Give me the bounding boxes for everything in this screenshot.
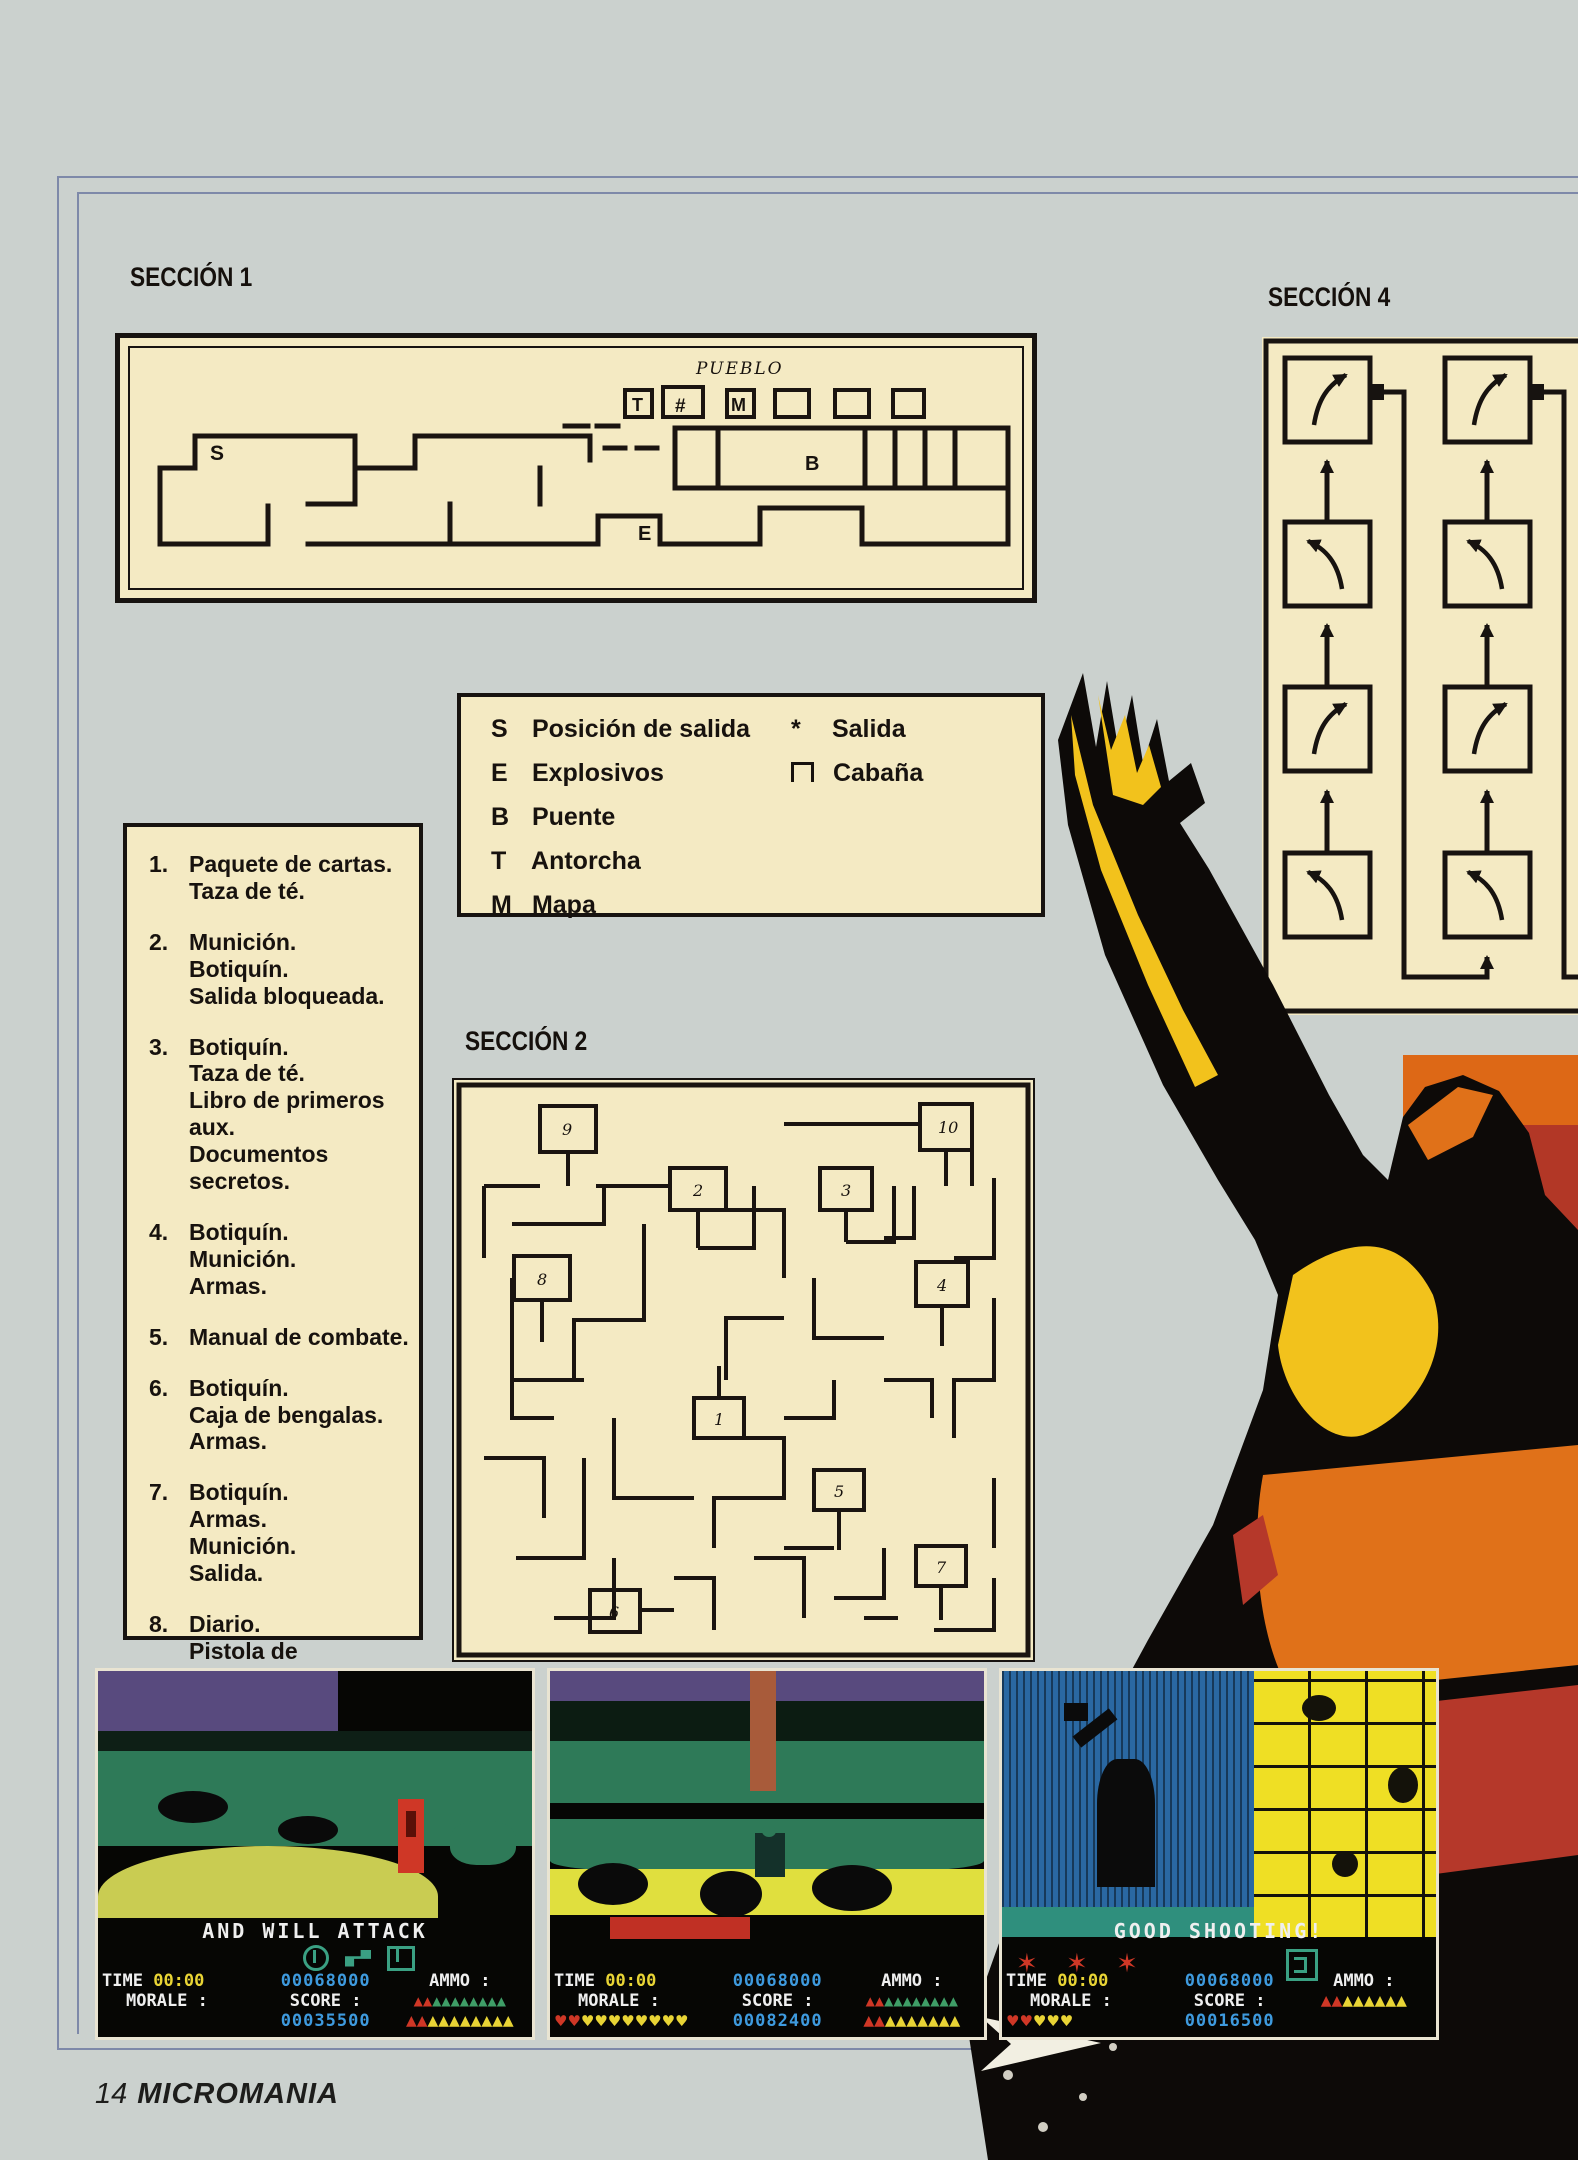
- hud: TIME 00:00 MORALE : ♥♥♥♥♥ 00068000 SCORE…: [1006, 1971, 1432, 2031]
- red-water: [610, 1917, 750, 1939]
- score-bottom: 00016500: [1164, 2011, 1296, 2031]
- legend-key-e: E: [491, 759, 525, 788]
- legend-key-s: S: [491, 715, 525, 744]
- page-number: 14: [95, 2078, 127, 2110]
- legend-row-m: M Mapa: [491, 891, 596, 920]
- cabin-square-icon: [791, 762, 814, 782]
- shadow-blob: [278, 1816, 338, 1844]
- maze-room-3: 3: [841, 1181, 851, 1200]
- hearts-red: ♥♥: [554, 2012, 581, 2030]
- hearts-yellow: ♥♥♥: [1033, 2012, 1073, 2030]
- ammo-row1-red: ▲▲: [414, 1994, 432, 2008]
- time-label: TIME: [1006, 1971, 1047, 1991]
- list-item: 6.Botiquín. Caja de bengalas. Armas.: [149, 1375, 409, 1456]
- splotch: [1302, 1695, 1336, 1721]
- shadow-blob: [158, 1791, 228, 1823]
- enemy-sprite-detail: [406, 1811, 416, 1837]
- list-item: 3.Botiquín. Taza de té. Libro de primero…: [149, 1034, 409, 1195]
- legend-row-cabin: Cabaña: [791, 759, 923, 788]
- held-object: [1064, 1703, 1088, 1721]
- list-item: 2.Munición. Botiquín. Salida bloqueada.: [149, 929, 409, 1010]
- morale-label: MORALE :: [1006, 1991, 1164, 2011]
- list-item: 1.Paquete de cartas. Taza de té.: [149, 851, 409, 905]
- page-frame-inner-left: [77, 192, 79, 2034]
- legend-row-exit: * Salida: [791, 715, 906, 744]
- hearts-red: ♥♥: [1006, 2012, 1033, 2030]
- ammo-row2-red: ▲▲: [1321, 1993, 1343, 2009]
- maze-room-9: 9: [562, 1120, 572, 1139]
- gun-icon: [345, 1950, 371, 1967]
- score-top: 00068000: [1164, 1971, 1296, 1991]
- section1-title: SECCIÓN 1: [130, 262, 252, 293]
- morale-label: MORALE :: [554, 1991, 712, 2011]
- screenshot-temple-interior: GOOD SHOOTING! ✶ ✶ ✶ TIME 00:00 MORALE :…: [999, 1668, 1439, 2040]
- maze-room-2: 2: [692, 1181, 703, 1200]
- ground-bank: [98, 1846, 438, 1918]
- map-icon: [387, 1946, 415, 1971]
- time-label: TIME: [102, 1971, 143, 1991]
- maze-room-8: 8: [537, 1270, 547, 1289]
- score-bottom: 00035500: [260, 2011, 392, 2031]
- items-panel: 1.Paquete de cartas. Taza de té. 2.Munic…: [123, 823, 423, 1640]
- list-item: 5.Manual de combate.: [149, 1324, 409, 1351]
- legend-label-e: Explosivos: [532, 759, 664, 787]
- legend-row-b: B Puente: [491, 803, 615, 832]
- legend-label-exit: Salida: [832, 715, 906, 743]
- score-label: SCORE :: [260, 1991, 392, 2011]
- soldier-silhouette: [1097, 1759, 1155, 1887]
- screenshots-row: AND WILL ATTACK TIME 00:00 MORALE : 0006…: [95, 1668, 1439, 2040]
- ammo-label: AMMO :: [1296, 1971, 1432, 1991]
- ammo-row2-yellow: ▲▲▲▲▲▲▲▲: [428, 2013, 514, 2029]
- legend-key-asterisk: *: [791, 715, 825, 744]
- legend-label-b: Puente: [532, 803, 615, 831]
- compass-icon: [303, 1945, 329, 1971]
- game-message: GOOD SHOOTING!: [1002, 1919, 1436, 1943]
- legend-label-m: Mapa: [532, 891, 596, 919]
- page-frame-inner-top: [77, 192, 1578, 194]
- magazine-name: MICROMANIA: [137, 2078, 339, 2110]
- magazine-page: SECCIÓN 1 PUEBLO: [0, 0, 1578, 2160]
- hearts-yellow: ♥♥♥♥♥♥♥♥: [581, 2012, 689, 2030]
- soldier-head: [762, 1825, 776, 1837]
- score-label: SCORE :: [712, 1991, 844, 2011]
- legend-key-t: T: [491, 847, 525, 876]
- section1-map-panel: PUEBLO T # M S B E: [115, 333, 1037, 603]
- legend-label-s: Posición de salida: [532, 715, 750, 743]
- ammo-row1-green: ▲▲▲▲▲▲▲▲: [884, 1994, 958, 2008]
- legend-row-s: S Posición de salida: [491, 715, 750, 744]
- legend-row-e: E Explosivos: [491, 759, 664, 788]
- morale-label: MORALE :: [102, 1991, 260, 2011]
- tree-trunk: [750, 1671, 776, 1791]
- hud: TIME 00:00 MORALE : ♥♥♥♥♥♥♥♥♥♥ 00068000 …: [554, 1971, 980, 2031]
- splotch: [1332, 1851, 1358, 1877]
- score-top: 00068000: [260, 1971, 392, 1991]
- bush-blob: [700, 1871, 762, 1917]
- ammo-row1-red: ▲▲: [866, 1994, 884, 2008]
- bush-blob: [812, 1865, 892, 1911]
- screenshot-jungle-bridge: TIME 00:00 MORALE : ♥♥♥♥♥♥♥♥♥♥ 00068000 …: [547, 1668, 987, 2040]
- ammo-label: AMMO :: [844, 1971, 980, 1991]
- ammo-row2-red: ▲▲: [863, 2013, 885, 2029]
- score-top: 00068000: [712, 1971, 844, 1991]
- section4-title: SECCIÓN 4: [1268, 282, 1390, 313]
- ammo-row2-yellow: ▲▲▲▲▲▲▲: [885, 2013, 960, 2029]
- bush-blob: [578, 1863, 648, 1905]
- legend-row-t: T Antorcha: [491, 847, 641, 876]
- ammo-row2-yellow: ▲▲▲▲▲▲: [1342, 1993, 1407, 2009]
- soldier-sprite: [755, 1833, 785, 1877]
- time-value: 00:00: [1057, 1971, 1108, 1991]
- ammo-row1-green: ▲▲▲▲▲▲▲▲: [432, 1994, 506, 2008]
- score-label: SCORE :: [1164, 1991, 1296, 2011]
- page-footer: 14MICROMANIA: [95, 2078, 339, 2111]
- section2-title: SECCIÓN 2: [465, 1026, 587, 1057]
- screenshot-jungle-attack: AND WILL ATTACK TIME 00:00 MORALE : 0006…: [95, 1668, 535, 2040]
- time-label: TIME: [554, 1971, 595, 1991]
- legend-key-b: B: [491, 803, 525, 832]
- time-value: 00:00: [153, 1971, 204, 1991]
- inventory-icons: [303, 1945, 415, 1971]
- maze-room-5: 5: [834, 1482, 844, 1501]
- score-bottom: 00082400: [712, 2011, 844, 2031]
- game-message: AND WILL ATTACK: [98, 1919, 532, 1943]
- list-item: 7.Botiquín. Armas. Munición. Salida.: [149, 1479, 409, 1587]
- yellow-door-panels: [1254, 1671, 1436, 1937]
- ammo-row2-red: ▲▲: [406, 2013, 428, 2029]
- splotch: [1388, 1767, 1418, 1803]
- hud: TIME 00:00 MORALE : 00068000 SCORE : 000…: [102, 1971, 528, 2031]
- legend-label-t: Antorcha: [531, 847, 641, 875]
- section1-map-inner-border: [128, 346, 1024, 590]
- legend-key-m: M: [491, 891, 525, 920]
- time-value: 00:00: [605, 1971, 656, 1991]
- legend-label-cabin: Cabaña: [833, 759, 923, 787]
- maze-room-1: 1: [714, 1410, 724, 1429]
- maze-room-6: 6: [609, 1603, 619, 1622]
- list-item: 4.Botiquín. Munición. Armas.: [149, 1219, 409, 1300]
- bush: [450, 1821, 516, 1865]
- ammo-label: AMMO :: [392, 1971, 528, 1991]
